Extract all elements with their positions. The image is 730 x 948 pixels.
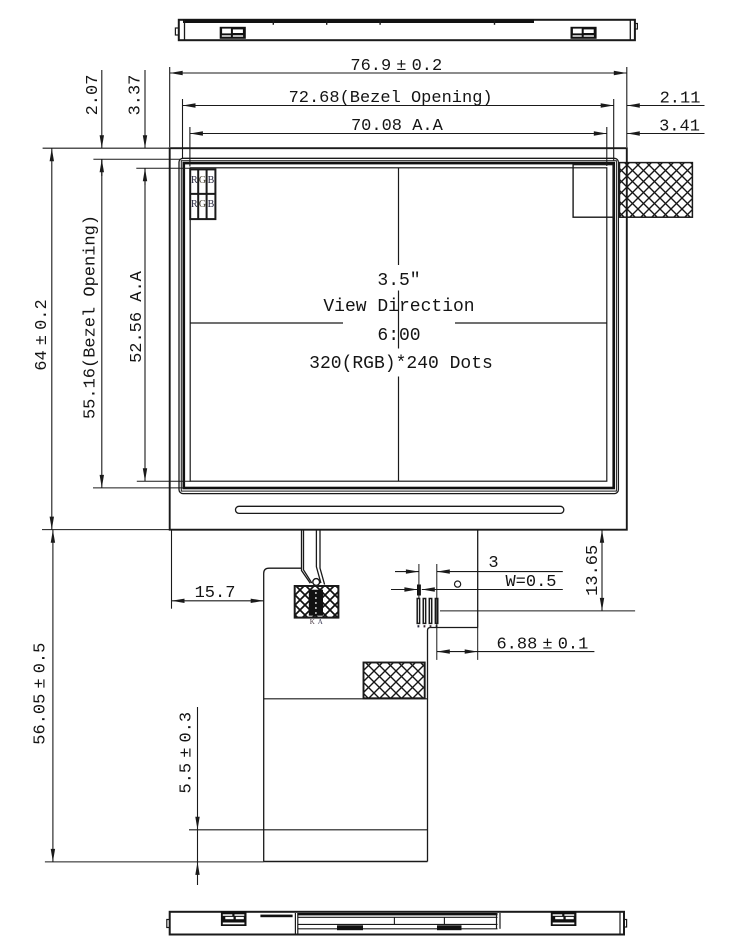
svg-text:G: G <box>199 175 206 186</box>
svg-text:64±0.2: 64±0.2 <box>33 299 52 370</box>
svg-text:2.07: 2.07 <box>84 75 103 116</box>
svg-text:3.37: 3.37 <box>126 75 145 116</box>
svg-text:View Direction: View Direction <box>323 297 474 317</box>
svg-text:K: K <box>310 618 315 626</box>
svg-text:70.08 A.A: 70.08 A.A <box>351 117 444 136</box>
svg-text:2.11: 2.11 <box>660 90 701 109</box>
svg-text:56.05±0.5: 56.05±0.5 <box>31 643 50 745</box>
svg-text:55.16(Bezel Opening): 55.16(Bezel Opening) <box>81 215 100 419</box>
svg-text:B: B <box>208 199 215 210</box>
svg-text:5.5±0.3: 5.5±0.3 <box>177 712 196 794</box>
svg-text:A: A <box>318 618 323 626</box>
svg-text:R: R <box>191 175 198 186</box>
svg-text:13.65: 13.65 <box>584 545 603 596</box>
svg-text:6.88±0.1: 6.88±0.1 <box>496 636 588 655</box>
svg-text:72.68(Bezel Opening): 72.68(Bezel Opening) <box>289 89 493 108</box>
svg-text:W=0.5: W=0.5 <box>505 573 556 592</box>
svg-text:3: 3 <box>488 554 498 573</box>
svg-text:6:00: 6:00 <box>377 326 420 346</box>
svg-text:320(RGB)*240 Dots: 320(RGB)*240 Dots <box>309 354 493 374</box>
svg-text:76.9±0.2: 76.9±0.2 <box>350 57 442 76</box>
svg-text:15.7: 15.7 <box>195 584 236 603</box>
svg-text:G: G <box>199 199 206 210</box>
svg-text:52.56 A.A: 52.56 A.A <box>128 270 147 363</box>
svg-text:3.41: 3.41 <box>659 117 700 136</box>
svg-text:R: R <box>191 199 198 210</box>
svg-text:B: B <box>208 175 215 186</box>
svg-text:3.5″: 3.5″ <box>377 271 420 291</box>
